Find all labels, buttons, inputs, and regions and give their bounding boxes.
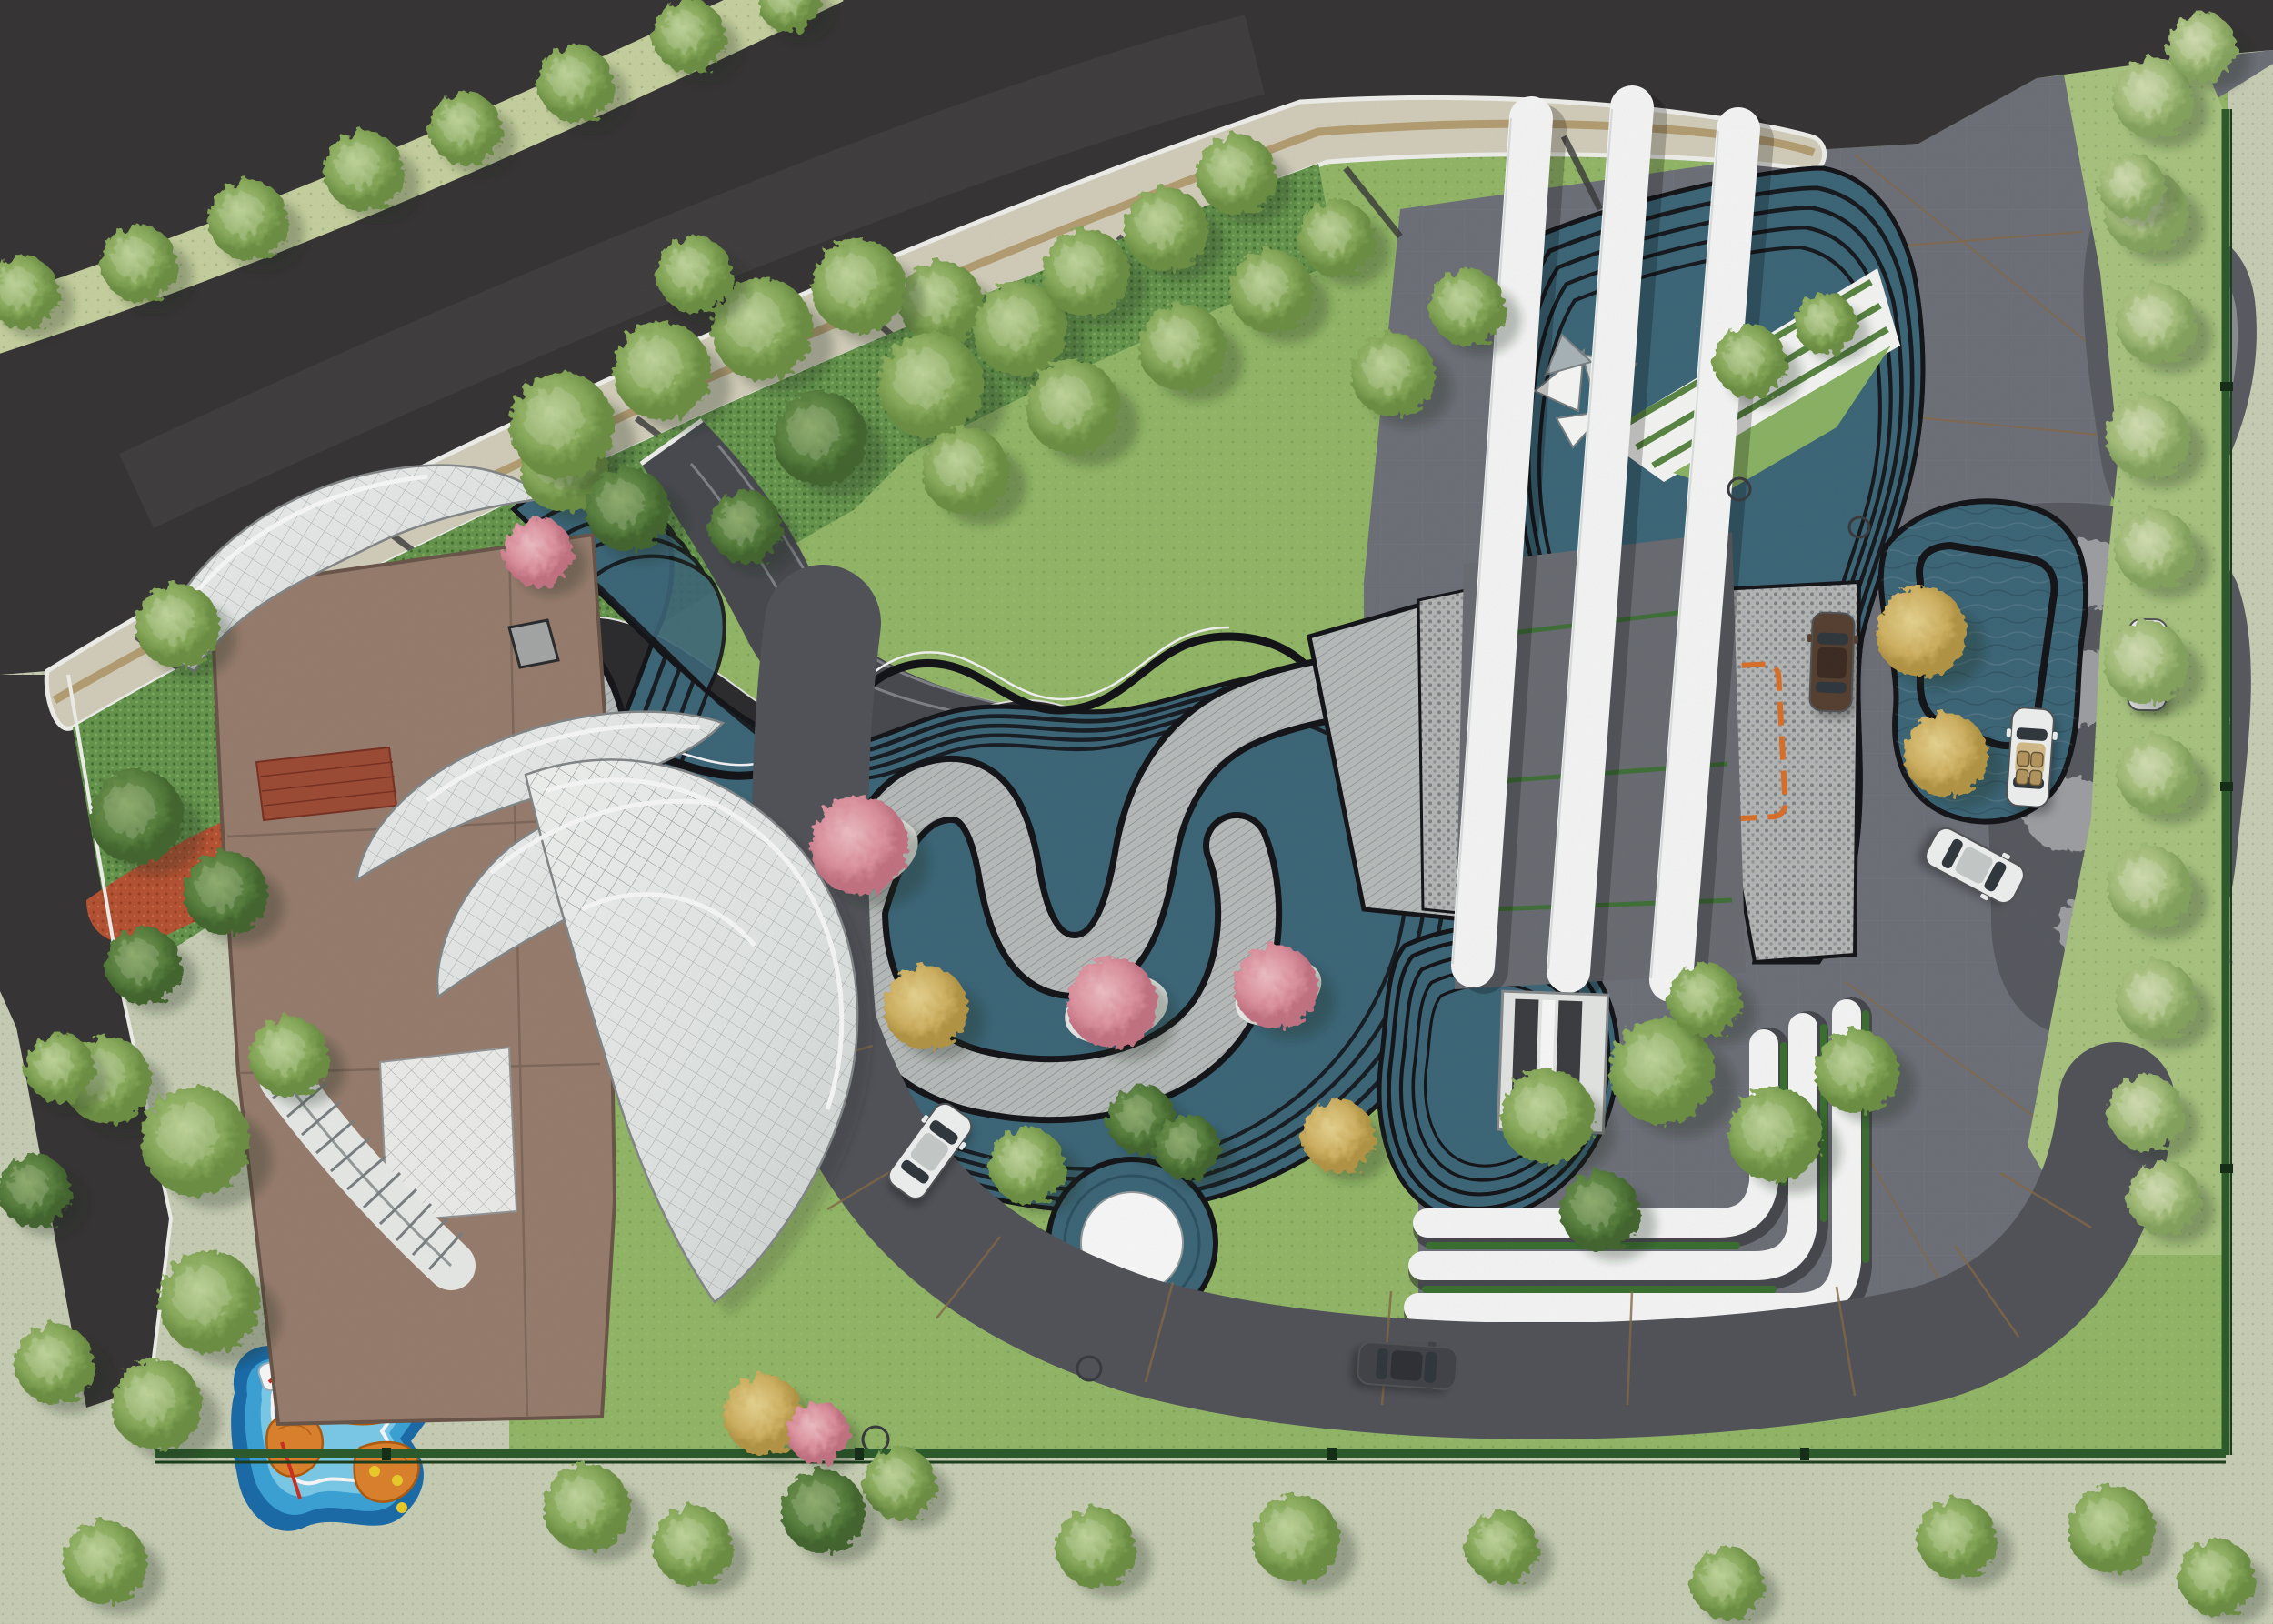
- paper-grain: [0, 0, 2273, 1624]
- site-plan-rendering: [0, 0, 2273, 1624]
- site-plan-stage: [0, 0, 2273, 1624]
